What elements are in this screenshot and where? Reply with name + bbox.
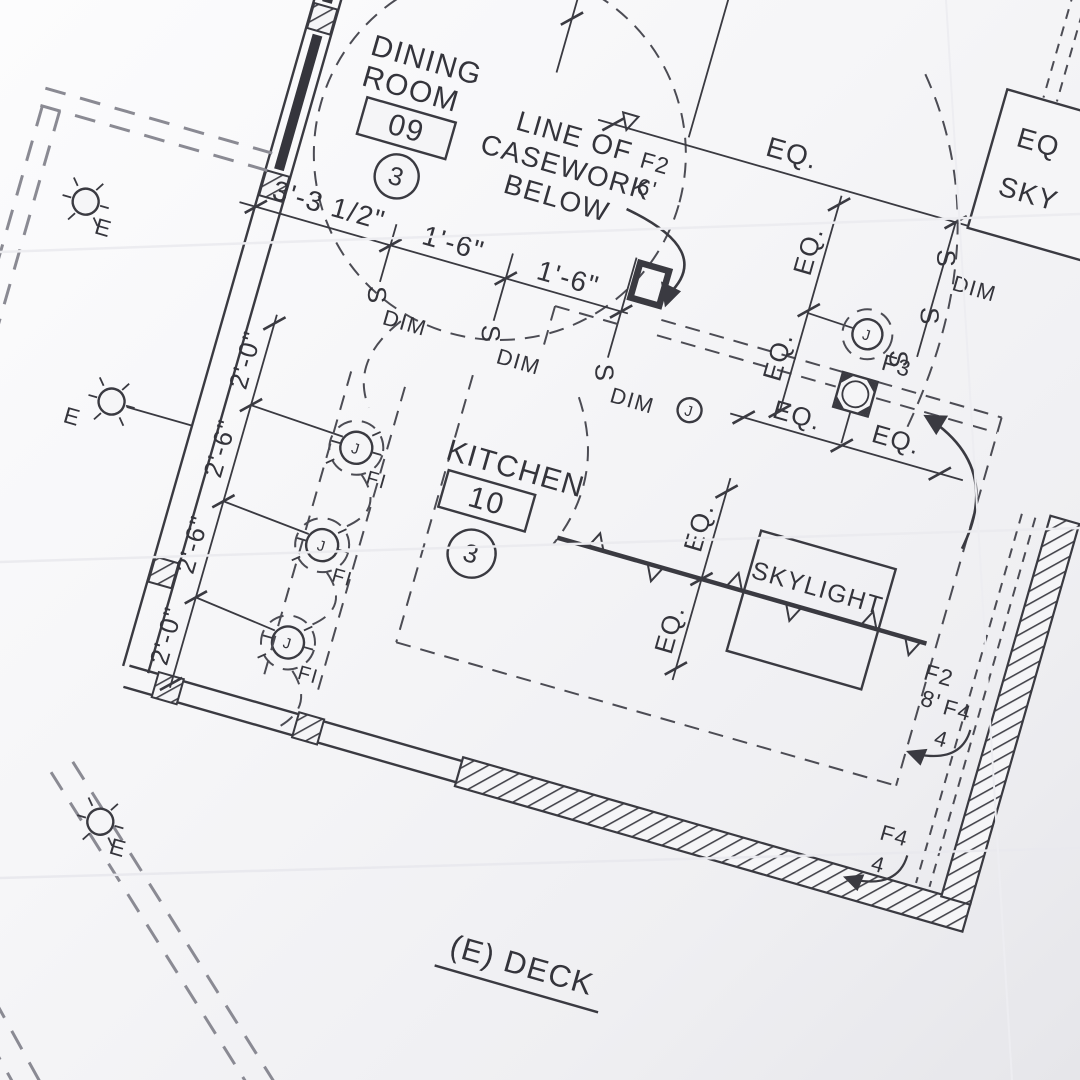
f1-fixture-2: J FI (209, 490, 367, 592)
ext-light-tag: E (61, 402, 84, 432)
dim-1-6-b: 1'-6" (534, 255, 603, 302)
ext-light-tag: E (107, 833, 130, 863)
recessed-fixture-square (833, 372, 878, 417)
eq-label: EQ. (770, 394, 826, 436)
skylight-group: SKYLIGHT F2 8' EQ. EQ. (528, 437, 989, 755)
exterior-light-1: E (53, 174, 123, 243)
dim-2-6-a: 2'-6" (197, 416, 242, 481)
floor-plan-drawing: DINING ROOM 09 3 LINE OF CASEWORK BELOW (0, 0, 1080, 1080)
exterior-light-2: E (61, 369, 199, 461)
dim-break-glyph: S (589, 363, 619, 382)
dim-break-glyph: S (476, 325, 506, 344)
f1-tag: FI (329, 565, 355, 592)
f2-right-size: 8' (918, 685, 945, 716)
f4-size: 4 (932, 725, 952, 753)
eq-label: EQ. (787, 223, 829, 279)
f4-code: F4 (877, 820, 911, 852)
ext-light-tag: E (92, 213, 115, 243)
dim-break-glyph: S (362, 286, 392, 305)
eq-label: EQ. (869, 418, 925, 460)
dim-2-0-top: 2'-0" (223, 327, 268, 392)
f4-code: F4 (940, 694, 974, 726)
eq-label: EQ. (677, 499, 719, 555)
floor-plan-sheet: DINING ROOM 09 3 LINE OF CASEWORK BELOW (0, 0, 1080, 1080)
kitchen-group: KITCHEN 10 3 (415, 434, 589, 602)
dim-mark-d: DIM (950, 270, 1000, 306)
left-dimension-chain: 2'-0" 2'-6" 2'-6" 2'-0" (137, 306, 286, 695)
dim-mark-a: DIM (380, 305, 430, 341)
exterior-light-3: E (68, 794, 138, 863)
dim-2-6-b: 2'-6" (170, 512, 215, 577)
dim-1-6-a: 1'-6" (419, 220, 488, 267)
eq-label: EQ. (757, 329, 799, 385)
dim-mark-b: DIM (494, 344, 544, 380)
f1-fixture-1: J FI (237, 391, 401, 494)
casework-corner-symbol (630, 263, 669, 306)
eq-label: EQ. (648, 601, 690, 657)
deck-label-group: (E) DECK (435, 925, 610, 1012)
f1-tag: FI (295, 662, 321, 689)
f1-fixture-3: J FI (181, 589, 333, 689)
dim-mark-c: DIM (607, 382, 657, 418)
blueprint-photo: DINING ROOM 09 3 LINE OF CASEWORK BELOW (0, 0, 1080, 1080)
f4-size: 4 (869, 850, 889, 878)
casework-leader-arrow (607, 209, 696, 296)
dim-break-glyph: S (915, 307, 945, 326)
south-wall (122, 662, 970, 932)
dim-2-0-bottom: 2'-0" (144, 603, 189, 668)
